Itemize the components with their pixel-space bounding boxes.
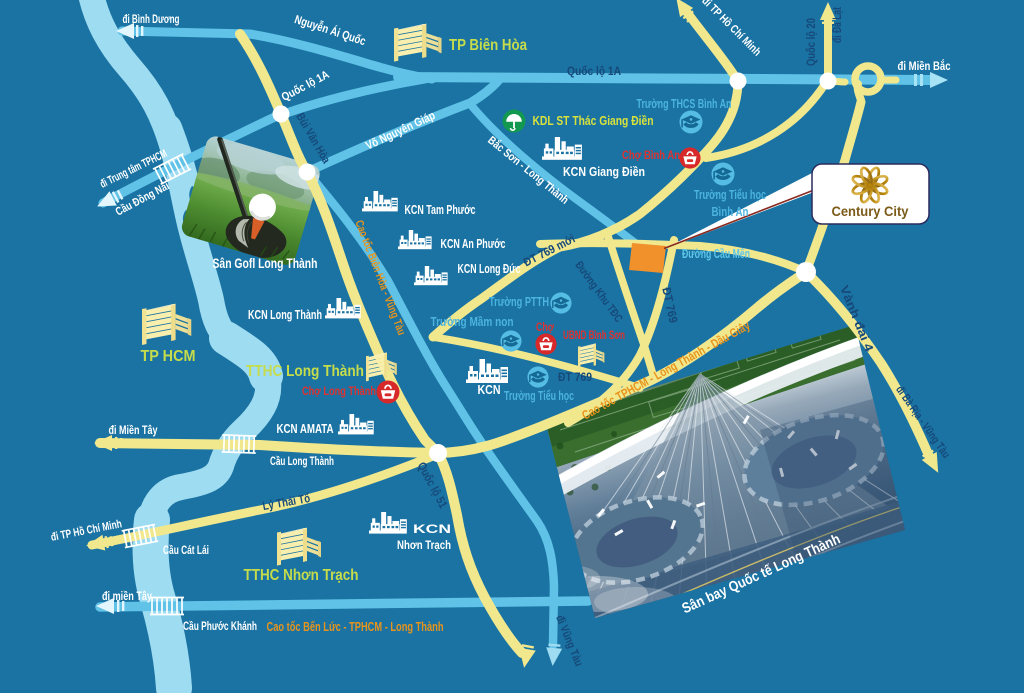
svg-text:Trường THCS Bình An: Trường THCS Bình An	[637, 97, 732, 111]
svg-text:đi miền Tây: đi miền Tây	[102, 589, 152, 603]
svg-text:đi Miền Tây: đi Miền Tây	[109, 423, 158, 437]
svg-text:Trường Mầm non: Trường Mầm non	[431, 315, 514, 329]
svg-text:KCN Long Đức: KCN Long Đức	[458, 262, 521, 276]
svg-text:TP Biên Hòa: TP Biên Hòa	[449, 37, 527, 54]
svg-text:KCN Long Thành: KCN Long Thành	[248, 308, 322, 322]
svg-text:đi Miền Bắc: đi Miền Bắc	[898, 58, 951, 73]
svg-text:Chợ Bình An: Chợ Bình An	[622, 150, 680, 162]
svg-text:Trường Tiểu học: Trường Tiểu học	[504, 389, 574, 403]
svg-text:KCN An Phước: KCN An Phước	[441, 237, 506, 251]
svg-text:KCN Giang Điền: KCN Giang Điền	[563, 165, 645, 179]
svg-text:TTHC Nhơn Trạch: TTHC Nhơn Trạch	[244, 567, 359, 584]
svg-text:Trường Tiểu học: Trường Tiểu học	[694, 188, 766, 202]
svg-text:Quốc lộ 20: Quốc lộ 20	[806, 18, 818, 66]
svg-text:KCN: KCN	[413, 522, 451, 536]
svg-text:Chợ Long Thành: Chợ Long Thành	[302, 386, 376, 398]
svg-text:Cầu Long Thành: Cầu Long Thành	[270, 456, 334, 468]
svg-text:KDL ST Thác Giang Điền: KDL ST Thác Giang Điền	[533, 114, 654, 128]
svg-text:Cầu Cát Lái: Cầu Cát Lái	[163, 545, 209, 557]
svg-text:Trường PTTH: Trường PTTH	[489, 295, 549, 309]
svg-text:KCN AMATA: KCN AMATA	[277, 421, 334, 436]
svg-text:Nhơn Trạch: Nhơn Trạch	[397, 538, 451, 552]
svg-text:Sân Gofl Long Thành: Sân Gofl Long Thành	[213, 256, 318, 271]
svg-text:UBND Bình Sơn: UBND Bình Sơn	[563, 330, 625, 342]
svg-text:đi Bình Dương: đi Bình Dương	[123, 12, 180, 26]
svg-text:Chợ: Chợ	[536, 322, 555, 334]
svg-text:TP HCM: TP HCM	[141, 348, 196, 365]
svg-text:Bình An: Bình An	[712, 205, 749, 219]
svg-text:Cao tốc Bến Lức - TPHCM - Long: Cao tốc Bến Lức - TPHCM - Long Thành	[267, 619, 444, 634]
svg-text:TTHC Long Thành: TTHC Long Thành	[246, 363, 364, 380]
svg-text:Century City: Century City	[832, 203, 909, 219]
svg-text:Đường Cầu Mên: Đường Cầu Mên	[682, 247, 750, 261]
svg-text:Quốc lộ 1A: Quốc lộ 1A	[567, 64, 621, 78]
svg-text:KCN: KCN	[478, 383, 501, 397]
svg-text:ĐT 769: ĐT 769	[558, 370, 592, 384]
svg-text:đi Đà Lạt: đi Đà Lạt	[832, 7, 844, 43]
svg-text:Cầu Phước Khánh: Cầu Phước Khánh	[183, 621, 257, 633]
svg-text:KCN Tam Phước: KCN Tam Phước	[405, 203, 476, 217]
